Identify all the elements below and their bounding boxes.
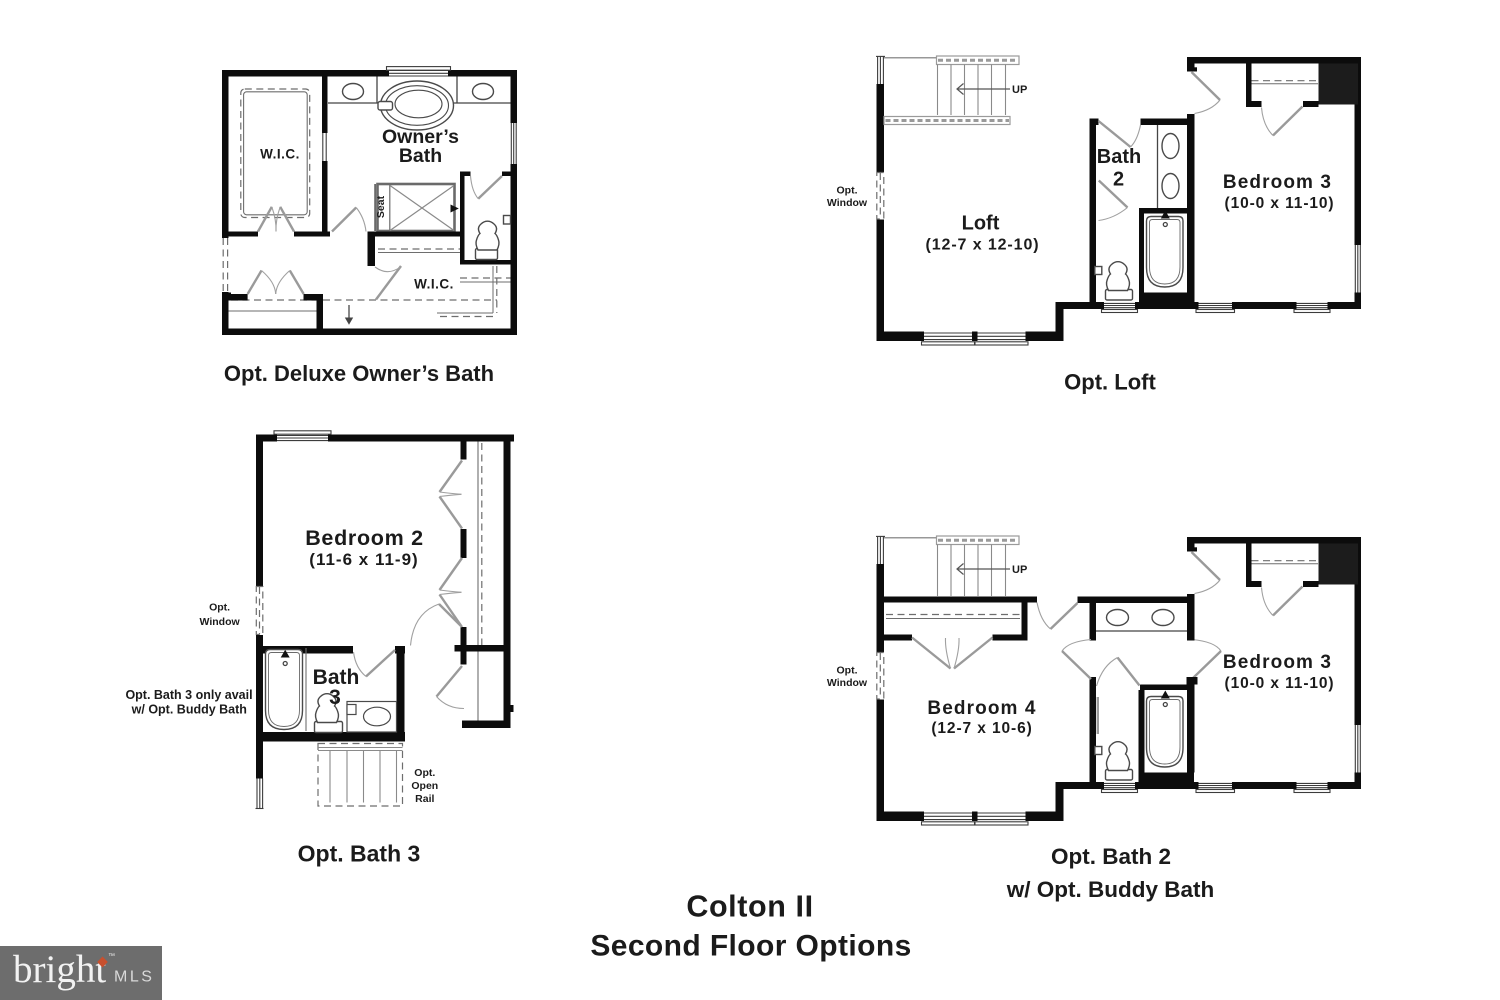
svg-text:Second Floor Options: Second Floor Options [590,930,911,963]
svg-text:Opt.: Opt. [837,185,858,197]
svg-text:Opt.: Opt. [209,602,230,614]
svg-text:Rail: Rail [415,793,434,805]
svg-text:Open: Open [411,780,438,792]
svg-text:Colton II: Colton II [686,890,813,924]
svg-text:W.I.C.: W.I.C. [260,147,300,162]
svg-text:Bath: Bath [399,145,442,167]
svg-text:Opt. Deluxe Owner’s Bath: Opt. Deluxe Owner’s Bath [224,361,494,386]
svg-text:Bedroom 2: Bedroom 2 [305,526,424,550]
svg-text:Opt. Bath 3: Opt. Bath 3 [298,841,421,867]
svg-text:w/ Opt. Buddy Bath: w/ Opt. Buddy Bath [131,703,247,717]
svg-text:2: 2 [1113,169,1124,191]
svg-text:UP: UP [1012,564,1027,576]
svg-text:W.I.C.: W.I.C. [414,277,454,292]
svg-text:Bedroom 3: Bedroom 3 [1223,652,1332,673]
svg-text:Bath: Bath [1097,146,1141,168]
svg-text:MLS: MLS [114,969,154,986]
svg-text:bright: bright [13,948,106,991]
svg-text:Opt.: Opt. [414,767,435,779]
svg-text:Bedroom 3: Bedroom 3 [1223,172,1332,193]
svg-text:(11-6 x 11-9): (11-6 x 11-9) [309,550,418,569]
svg-text:Window: Window [827,197,868,209]
svg-text:3: 3 [329,686,341,709]
svg-text:Seat: Seat [375,195,387,218]
svg-text:UP: UP [1012,84,1027,96]
svg-text:(10-0 x 11-10): (10-0 x 11-10) [1225,195,1335,212]
svg-text:w/ Opt. Buddy Bath: w/ Opt. Buddy Bath [1006,877,1215,902]
svg-text:Bedroom 4: Bedroom 4 [927,698,1036,719]
svg-text:™: ™ [108,953,115,960]
svg-text:Opt.: Opt. [837,665,858,677]
svg-text:Opt. Bath 2: Opt. Bath 2 [1051,844,1171,869]
svg-text:(12-7 x 10-6): (12-7 x 10-6) [931,720,1032,737]
svg-text:(12-7 x 12-10): (12-7 x 12-10) [926,237,1040,254]
svg-text:(10-0 x 11-10): (10-0 x 11-10) [1225,675,1335,692]
svg-text:Window: Window [827,677,868,689]
svg-text:Opt. Bath 3 only avail: Opt. Bath 3 only avail [125,688,252,702]
svg-text:Loft: Loft [962,213,1000,235]
svg-text:Window: Window [200,616,241,628]
svg-text:Opt. Loft: Opt. Loft [1064,370,1156,395]
